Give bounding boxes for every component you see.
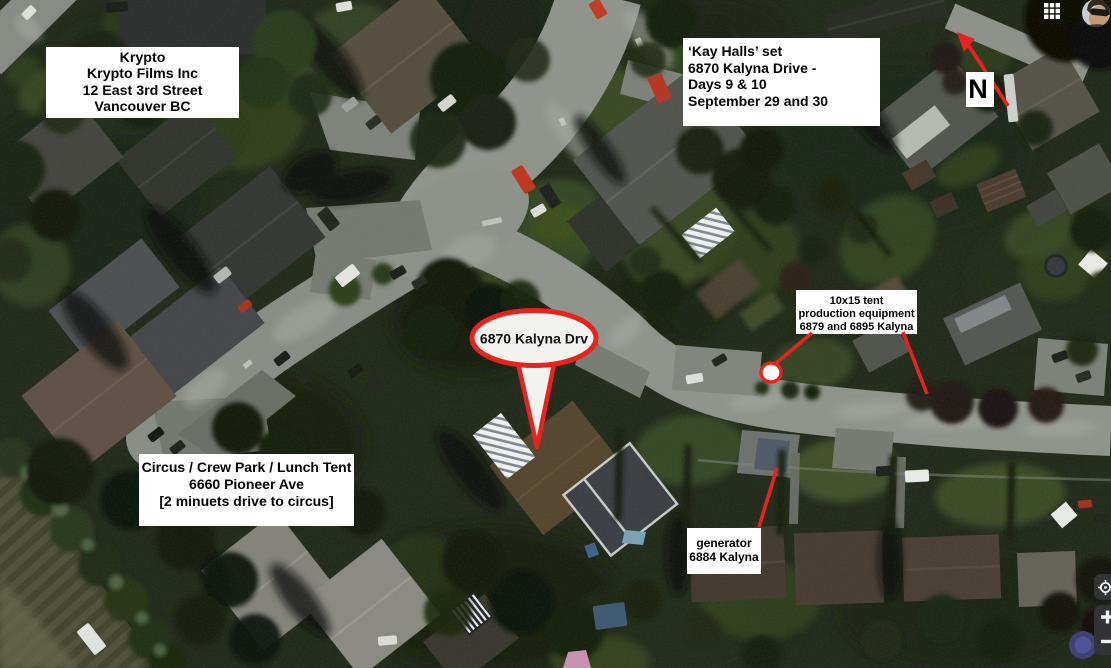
svg-text:6870 Kalyna Drv: 6870 Kalyna Drv bbox=[480, 331, 588, 347]
svg-text:N: N bbox=[968, 74, 988, 104]
